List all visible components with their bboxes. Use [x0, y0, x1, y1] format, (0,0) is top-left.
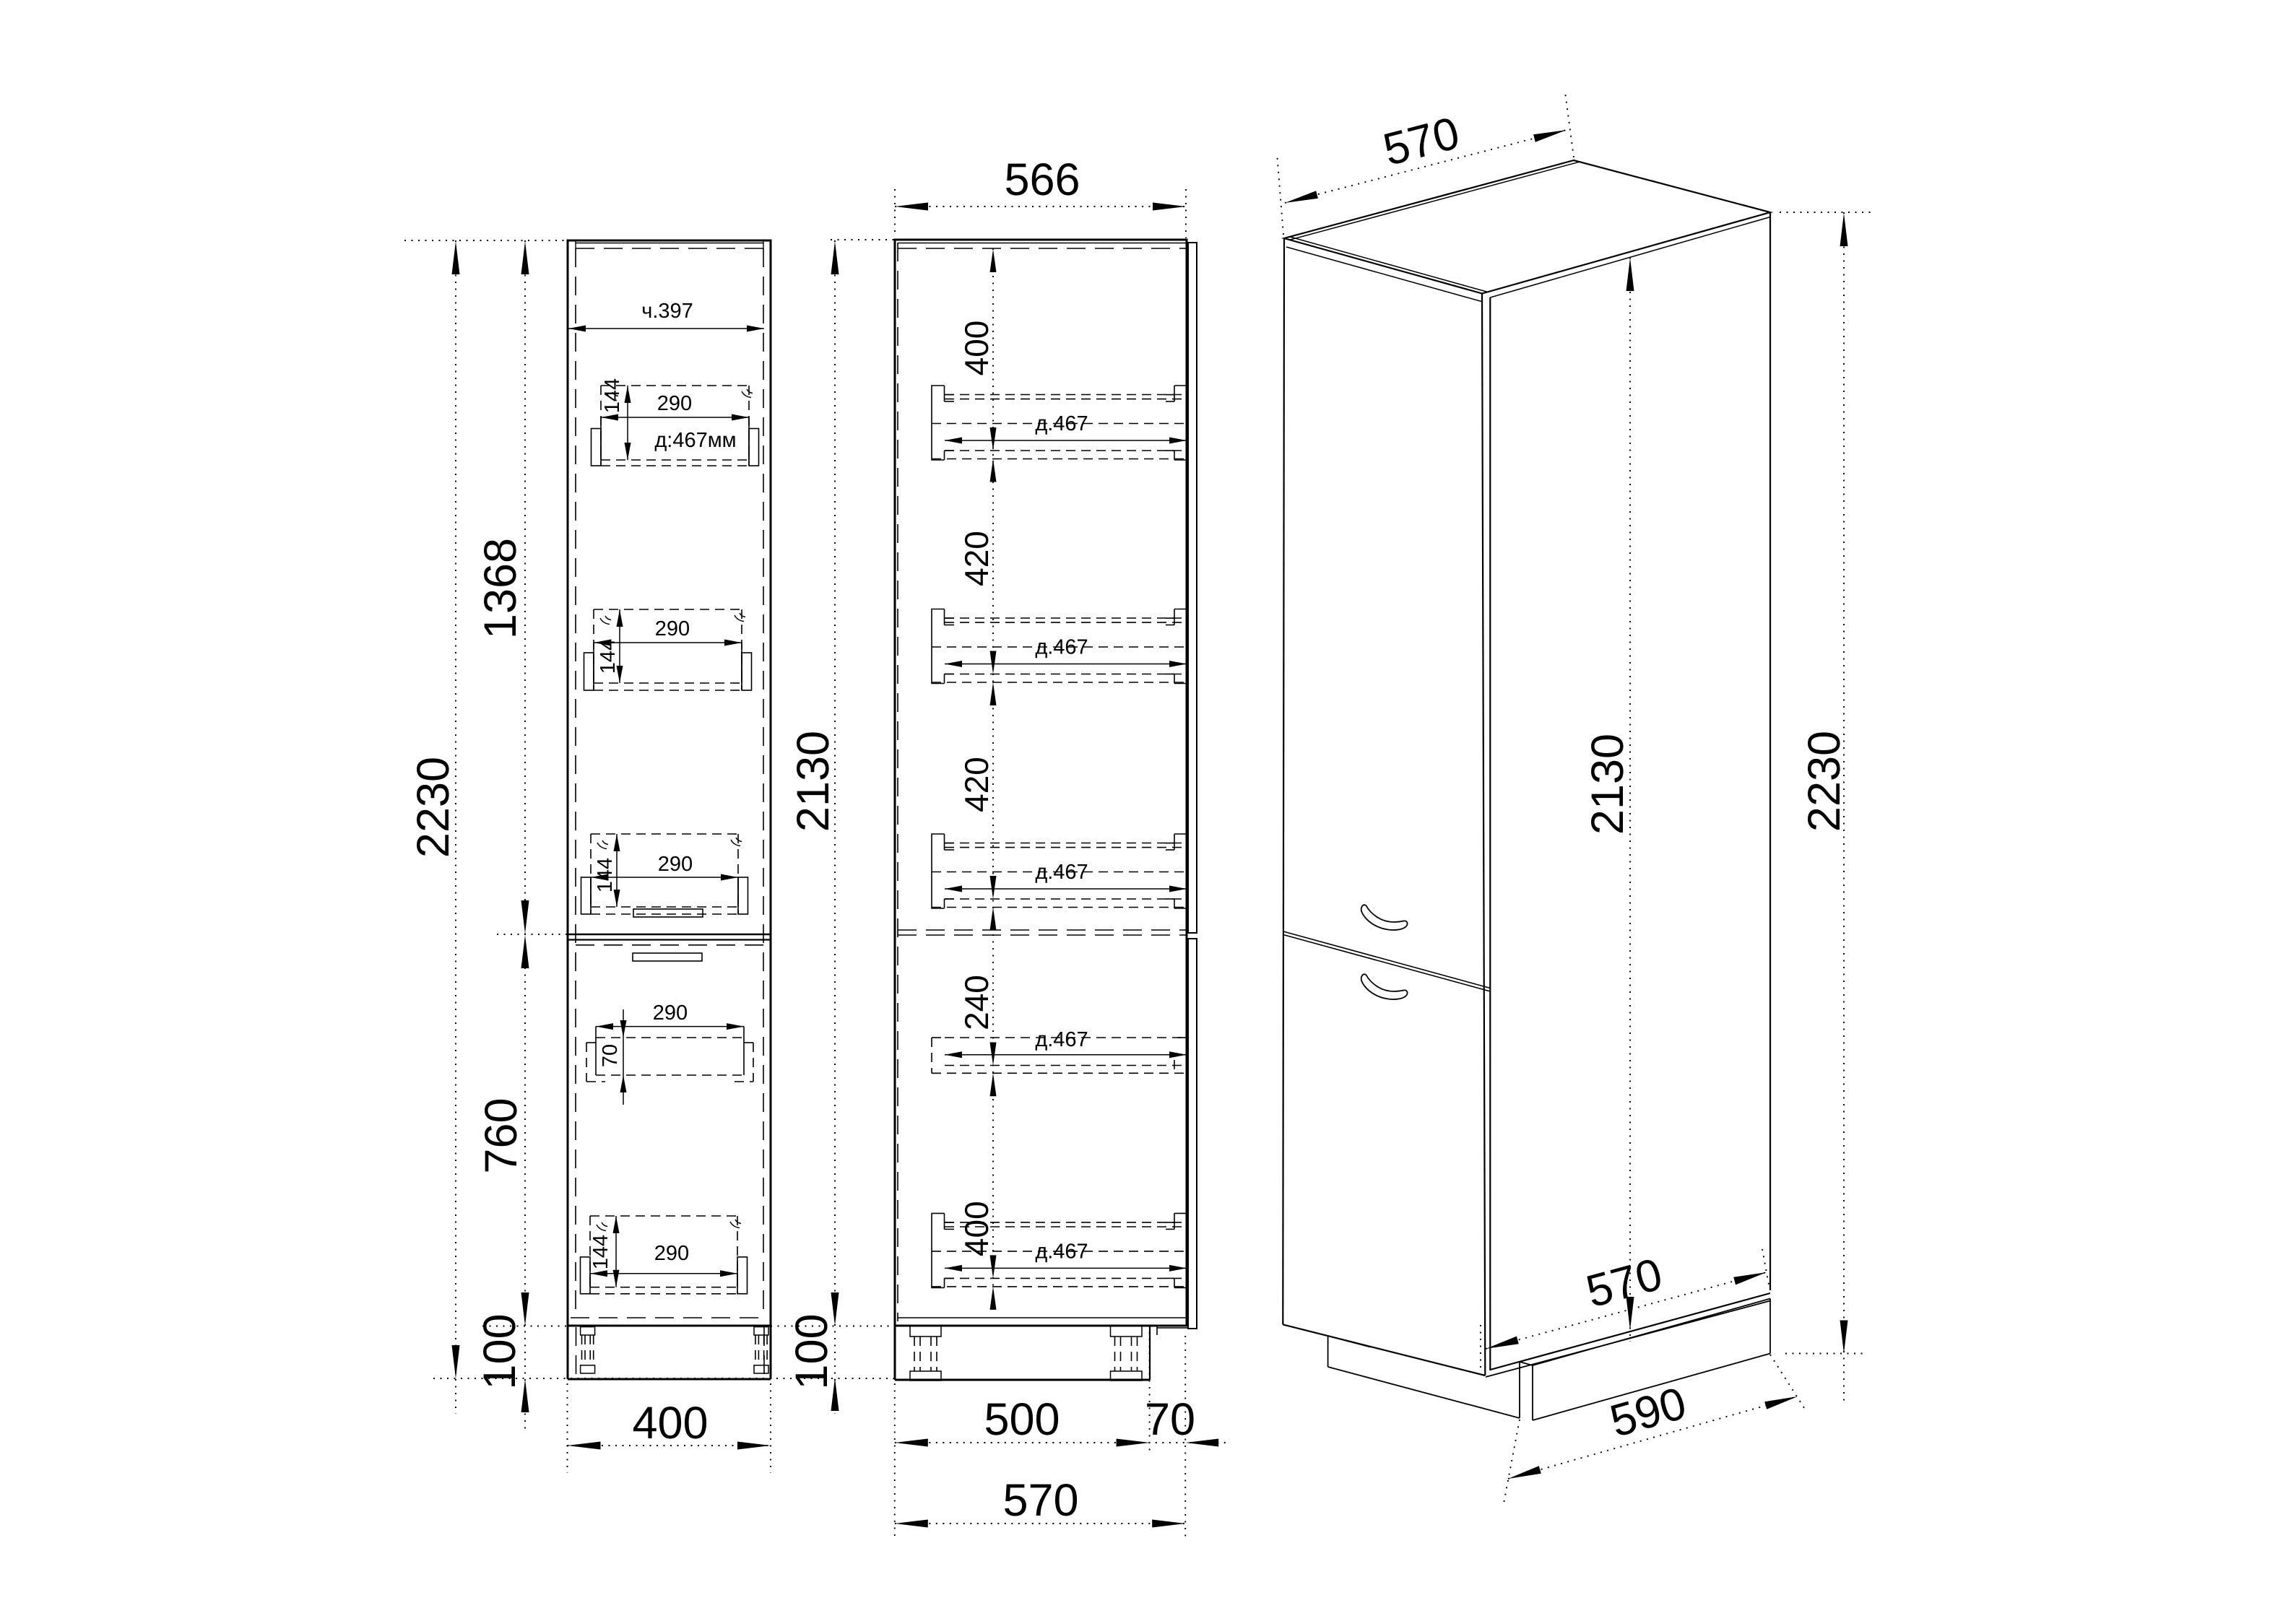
svg-text:100: 100: [787, 1313, 837, 1389]
svg-text:290: 290: [657, 392, 692, 415]
svg-text:290: 290: [655, 617, 690, 640]
svg-text:290: 290: [658, 853, 693, 876]
svg-text:2230: 2230: [408, 757, 459, 858]
svg-text:400: 400: [632, 1398, 708, 1448]
svg-text:240: 240: [958, 975, 995, 1030]
svg-text:2130: 2130: [1582, 734, 1633, 835]
svg-text:760: 760: [476, 1098, 527, 1173]
svg-text:2130: 2130: [788, 731, 839, 832]
svg-text:290: 290: [653, 1001, 688, 1025]
svg-text:420: 420: [958, 531, 995, 586]
svg-text:420: 420: [958, 757, 995, 812]
svg-text:144: 144: [594, 858, 617, 892]
svg-text:2230: 2230: [1799, 731, 1850, 832]
svg-text:1368: 1368: [475, 538, 526, 639]
svg-text:400: 400: [958, 321, 995, 376]
svg-text:д.467: д.467: [1035, 1240, 1088, 1263]
svg-text:144: 144: [601, 378, 624, 413]
svg-text:д.467: д.467: [1035, 412, 1088, 435]
svg-text:ч.397: ч.397: [641, 300, 693, 323]
svg-text:70: 70: [599, 1044, 622, 1067]
svg-text:144: 144: [589, 1235, 612, 1269]
svg-text:500: 500: [984, 1394, 1060, 1445]
svg-text:570: 570: [1002, 1475, 1078, 1526]
svg-text:290: 290: [654, 1242, 689, 1265]
svg-text:д.467: д.467: [1035, 1028, 1088, 1051]
svg-text:144: 144: [597, 639, 620, 674]
svg-text:566: 566: [1004, 155, 1080, 205]
svg-text:д.467: д.467: [1035, 861, 1088, 884]
svg-text:д.467: д.467: [1035, 636, 1088, 659]
svg-text:400: 400: [958, 1201, 995, 1256]
svg-text:70: 70: [1145, 1394, 1195, 1445]
svg-text:д:467мм: д:467мм: [654, 429, 736, 452]
